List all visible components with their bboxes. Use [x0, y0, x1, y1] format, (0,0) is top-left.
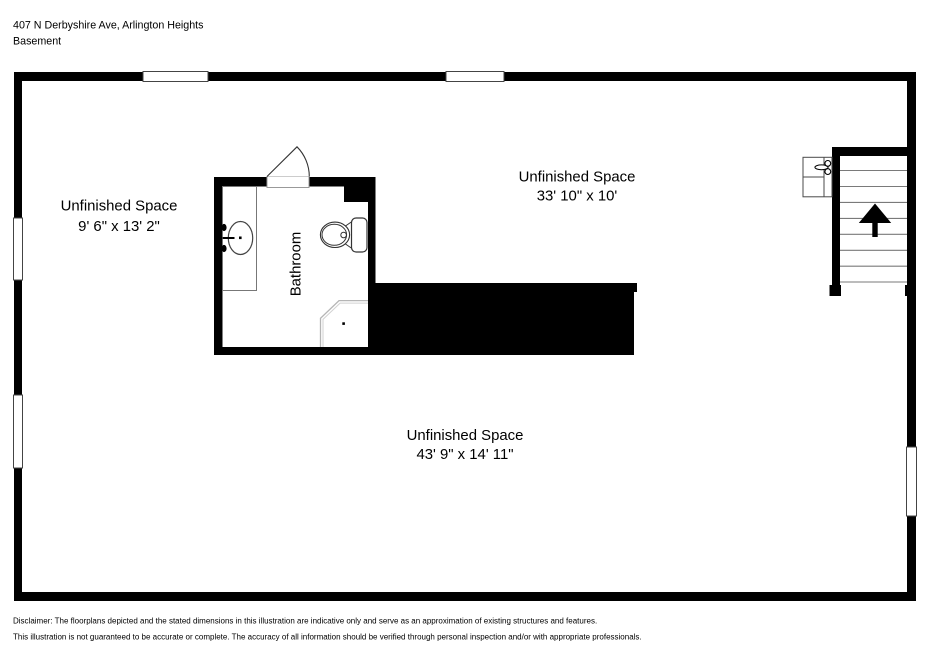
- svg-text:Bathroom: Bathroom: [289, 232, 305, 297]
- svg-text:407 N Derbyshire Ave, Arlingto: 407 N Derbyshire Ave, Arlington Heights: [13, 20, 204, 32]
- svg-text:9' 6" x 13' 2": 9' 6" x 13' 2": [78, 219, 160, 235]
- svg-text:43' 9" x 14' 11": 43' 9" x 14' 11": [416, 447, 513, 463]
- svg-text:Basement: Basement: [13, 36, 61, 48]
- svg-text:Unfinished Space: Unfinished Space: [519, 169, 636, 185]
- svg-text:This illustration is not guara: This illustration is not guaranteed to b…: [13, 632, 642, 641]
- svg-text:Unfinished Space: Unfinished Space: [407, 428, 524, 444]
- svg-text:Unfinished Space: Unfinished Space: [61, 198, 178, 214]
- svg-text:Disclaimer: The floorplans dep: Disclaimer: The floorplans depicted and …: [13, 617, 597, 626]
- svg-text:33' 10" x 10': 33' 10" x 10': [537, 188, 618, 204]
